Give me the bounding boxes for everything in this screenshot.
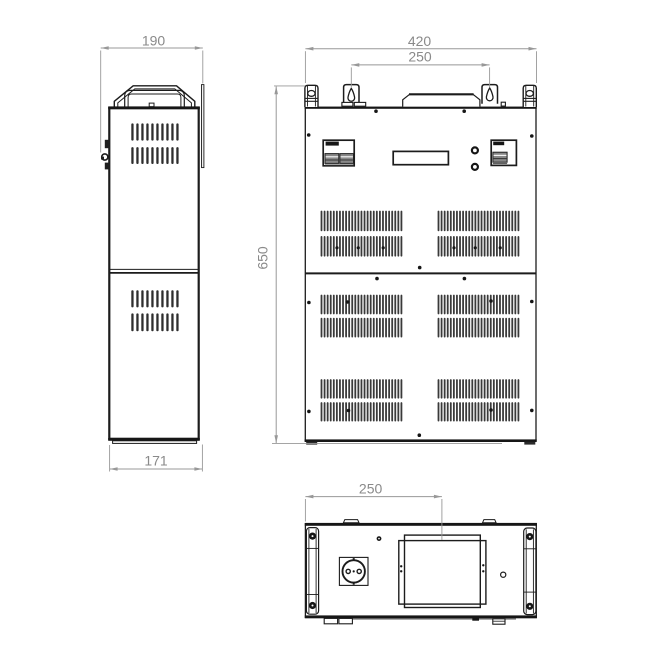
svg-text:250: 250 <box>359 480 383 496</box>
svg-text:171: 171 <box>144 453 168 469</box>
svg-text:250: 250 <box>408 49 432 65</box>
svg-text:650: 650 <box>255 246 271 270</box>
svg-text:190: 190 <box>142 33 166 49</box>
svg-text:420: 420 <box>408 33 432 49</box>
